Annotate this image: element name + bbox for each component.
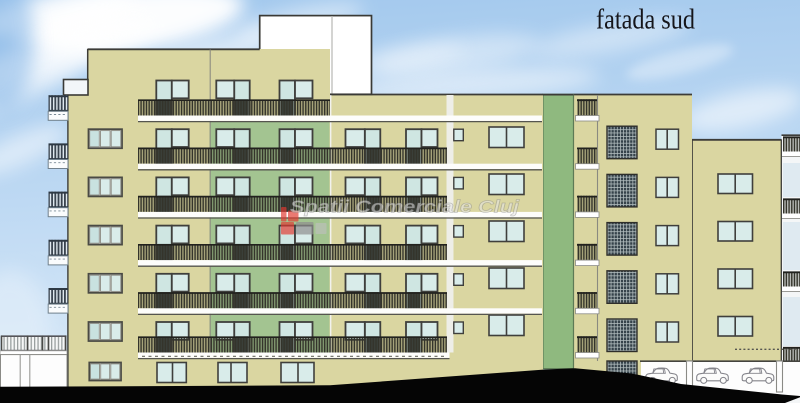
- svg-text:fatada sud: fatada sud: [596, 5, 695, 36]
- svg-text:Spatii Comerciale Cluj: Spatii Comerciale Cluj: [290, 197, 520, 217]
